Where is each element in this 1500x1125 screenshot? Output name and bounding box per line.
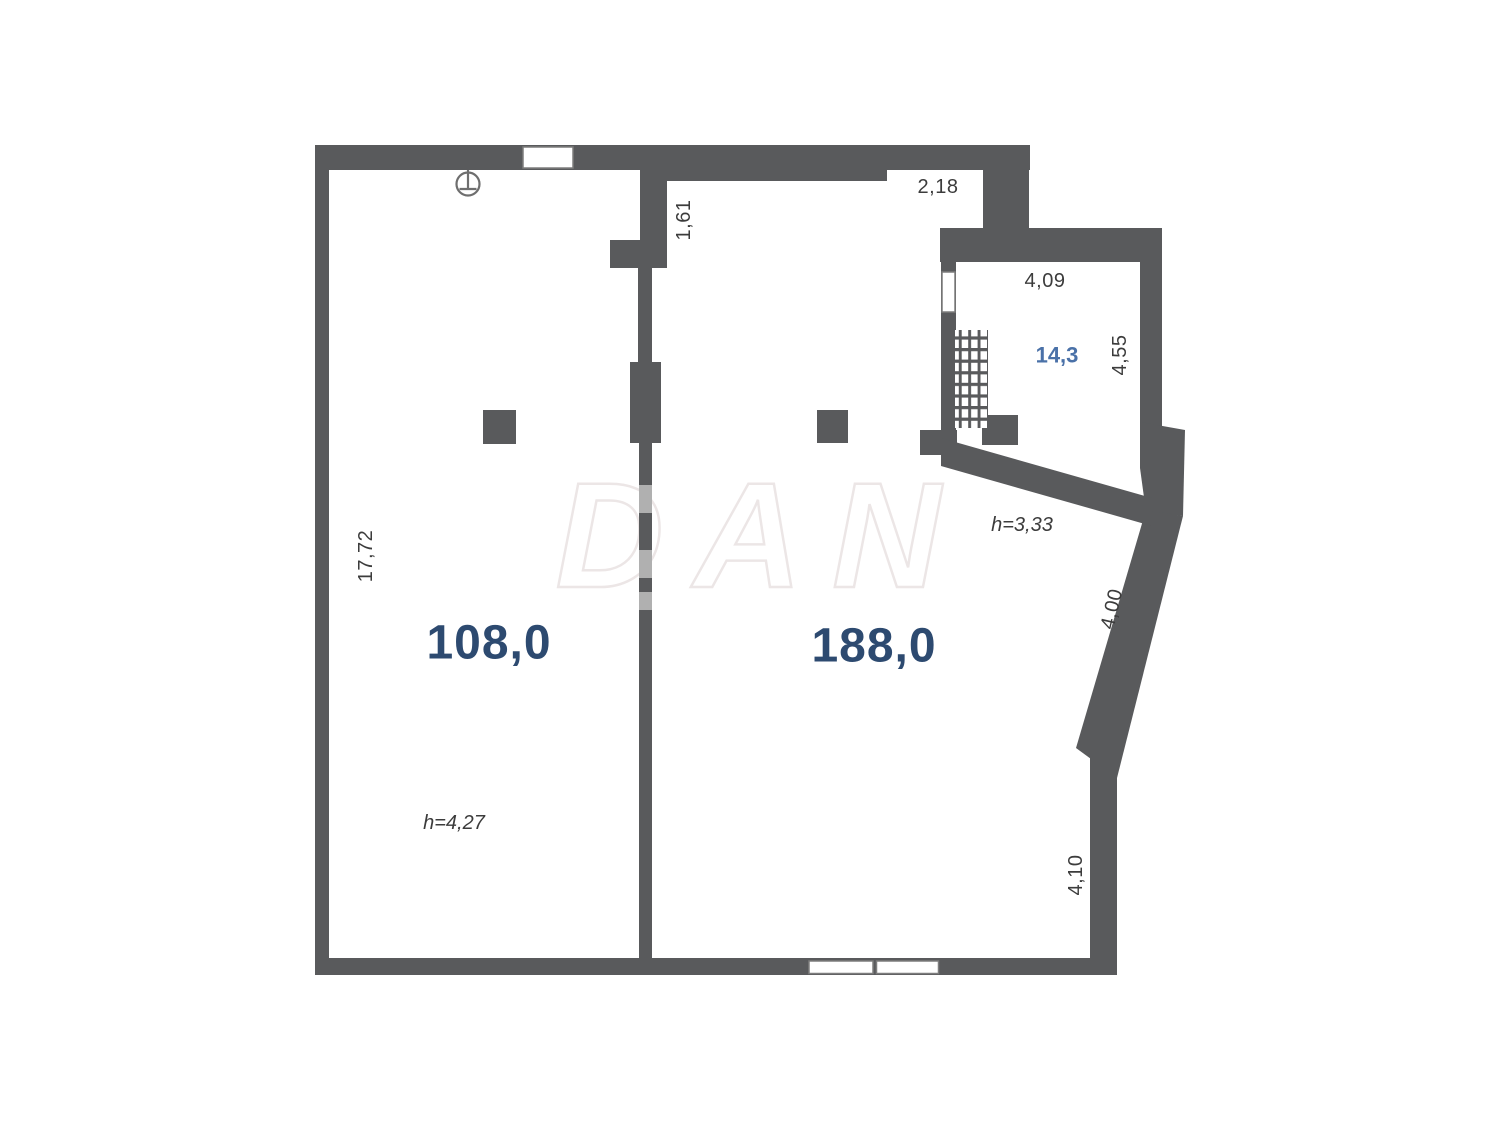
column-left-room <box>483 410 516 444</box>
window-bottom-left <box>809 961 873 974</box>
dim-right-wall: 4,10 <box>1065 855 1087 896</box>
wall-divider-foot <box>610 240 640 268</box>
wall-divider-top <box>640 168 667 268</box>
area-left-room: 108,0 <box>426 617 551 670</box>
wall-smallroom-top <box>940 228 1162 262</box>
wall-top <box>315 145 1030 170</box>
wall-divider-opening3 <box>639 592 652 610</box>
wall-divider-seg1 <box>639 443 652 485</box>
wall-smallroom-right <box>1140 262 1162 430</box>
wall-divider-opening1 <box>639 485 652 513</box>
dim-entry-recess: 2,18 <box>918 176 959 198</box>
area-smallroom: 14,3 <box>1036 343 1079 368</box>
wall-divider-seg3 <box>639 578 652 592</box>
wall-right-lower <box>1090 750 1117 975</box>
wall-diagonal-inner <box>941 438 1152 526</box>
stairs-hatch <box>955 330 988 428</box>
wall-divider-opening2 <box>639 550 652 578</box>
dim-smallroom-depth: 4,55 <box>1109 335 1131 376</box>
wall-top-inner-strip <box>667 170 887 181</box>
watermark-text: DAN <box>556 451 971 619</box>
column-right-room <box>817 410 848 443</box>
area-right-room: 188,0 <box>811 620 936 673</box>
height-right-room: h=3,33 <box>991 514 1053 536</box>
dim-partition-opening: 1,61 <box>673 200 695 241</box>
dim-smallroom-width: 4,09 <box>1025 270 1066 292</box>
ground-symbol-icon <box>457 170 480 196</box>
wall-diagonal-right <box>1076 510 1183 778</box>
window-bottom-right <box>877 961 939 974</box>
wall-divider-seg4 <box>639 610 652 958</box>
window-top <box>523 147 573 168</box>
dim-left-wall: 17,72 <box>355 530 377 583</box>
wall-divider-seg2 <box>639 513 652 550</box>
wall-divider-pillar <box>630 362 661 443</box>
floor-plan: DAN <box>0 0 1500 1125</box>
window-smallroom <box>942 272 955 312</box>
wall-entry-connector <box>983 170 1029 228</box>
wall-left <box>315 145 329 975</box>
wall-bottom <box>315 958 1117 975</box>
wall-divider-thin-upper <box>638 268 652 364</box>
height-left-room: h=4,27 <box>423 812 486 834</box>
